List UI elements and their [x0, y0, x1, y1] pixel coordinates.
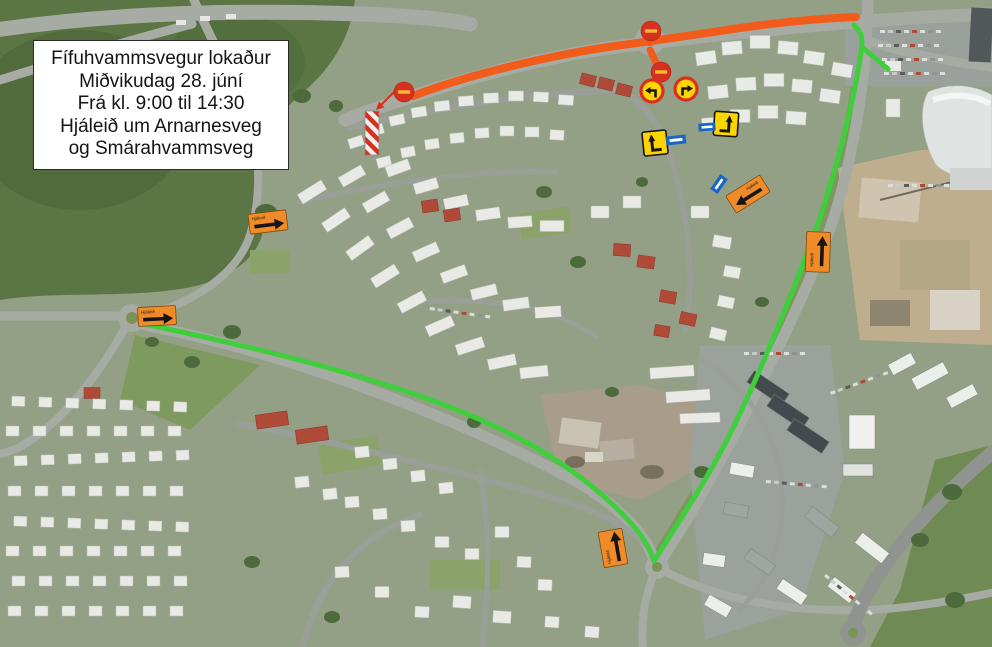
info-box: Fífuhvammsvegur lokaður Miðvikudag 28. j… [33, 40, 289, 170]
svg-text:Hjáleið: Hjáleið [141, 308, 156, 315]
detour-arrow-sign: Hjáleið [138, 306, 177, 327]
svg-text:Hjáleið: Hjáleið [808, 252, 814, 266]
info-box-line: Miðvikudag 28. júní [36, 71, 286, 94]
one-way-sign [698, 122, 716, 131]
detour-arrow-sign: Hjáleið [248, 210, 288, 234]
info-box-line: Fífuhvammsvegur lokaður [36, 48, 286, 71]
info-box-line: og Smárahvammsveg [36, 138, 286, 161]
detour-turn-sign [713, 111, 739, 137]
detour-arrow-sign: Hjáleið [805, 232, 830, 273]
turn-restriction-sign [641, 80, 663, 102]
turn-restriction-sign [675, 78, 697, 100]
detour-turn-sign [642, 130, 668, 156]
no-entry-sign [641, 21, 661, 41]
road-closure-map: Hjáleið Hjáleið Hjáleið Hjáleið Hjáleið … [0, 0, 992, 647]
info-box-line: Frá kl. 9:00 til 14:30 [36, 93, 286, 116]
no-entry-sign [394, 82, 414, 102]
info-box-line: Hjáleið um Arnarnesveg [36, 116, 286, 139]
